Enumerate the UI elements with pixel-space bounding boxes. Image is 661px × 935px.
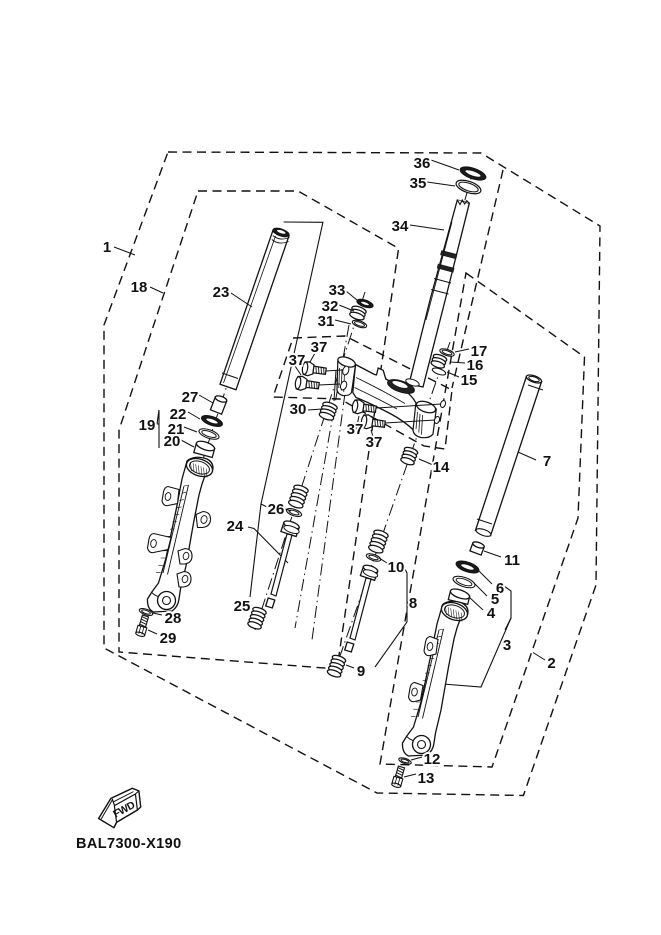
svg-text:20: 20 bbox=[164, 433, 181, 450]
svg-text:11: 11 bbox=[504, 552, 520, 569]
svg-text:2: 2 bbox=[547, 655, 555, 672]
svg-text:34: 34 bbox=[392, 218, 409, 235]
svg-text:28: 28 bbox=[165, 610, 182, 627]
svg-text:4: 4 bbox=[487, 605, 496, 622]
svg-text:37: 37 bbox=[289, 352, 306, 369]
svg-text:33: 33 bbox=[329, 282, 346, 299]
svg-text:36: 36 bbox=[414, 155, 431, 172]
svg-text:1: 1 bbox=[103, 239, 111, 256]
svg-text:30: 30 bbox=[290, 401, 307, 418]
svg-text:14: 14 bbox=[433, 459, 450, 476]
svg-text:18: 18 bbox=[131, 279, 148, 296]
svg-text:15: 15 bbox=[461, 372, 478, 389]
svg-text:37: 37 bbox=[366, 434, 383, 451]
svg-text:31: 31 bbox=[318, 313, 335, 330]
svg-text:29: 29 bbox=[160, 630, 177, 647]
svg-text:9: 9 bbox=[357, 663, 365, 680]
svg-text:10: 10 bbox=[388, 559, 405, 576]
svg-text:12: 12 bbox=[424, 751, 441, 768]
svg-text:26: 26 bbox=[268, 501, 285, 518]
svg-text:19: 19 bbox=[139, 417, 156, 434]
svg-text:7: 7 bbox=[543, 453, 551, 470]
svg-text:13: 13 bbox=[418, 770, 435, 787]
svg-text:8: 8 bbox=[409, 595, 417, 612]
svg-text:25: 25 bbox=[234, 598, 251, 615]
svg-text:37: 37 bbox=[311, 339, 328, 356]
svg-text:23: 23 bbox=[213, 284, 230, 301]
svg-text:3: 3 bbox=[503, 637, 511, 654]
svg-text:24: 24 bbox=[227, 518, 244, 535]
svg-text:27: 27 bbox=[182, 389, 199, 406]
svg-text:37: 37 bbox=[347, 421, 364, 438]
svg-text:35: 35 bbox=[410, 175, 427, 192]
svg-text:BAL7300-X190: BAL7300-X190 bbox=[76, 836, 182, 852]
